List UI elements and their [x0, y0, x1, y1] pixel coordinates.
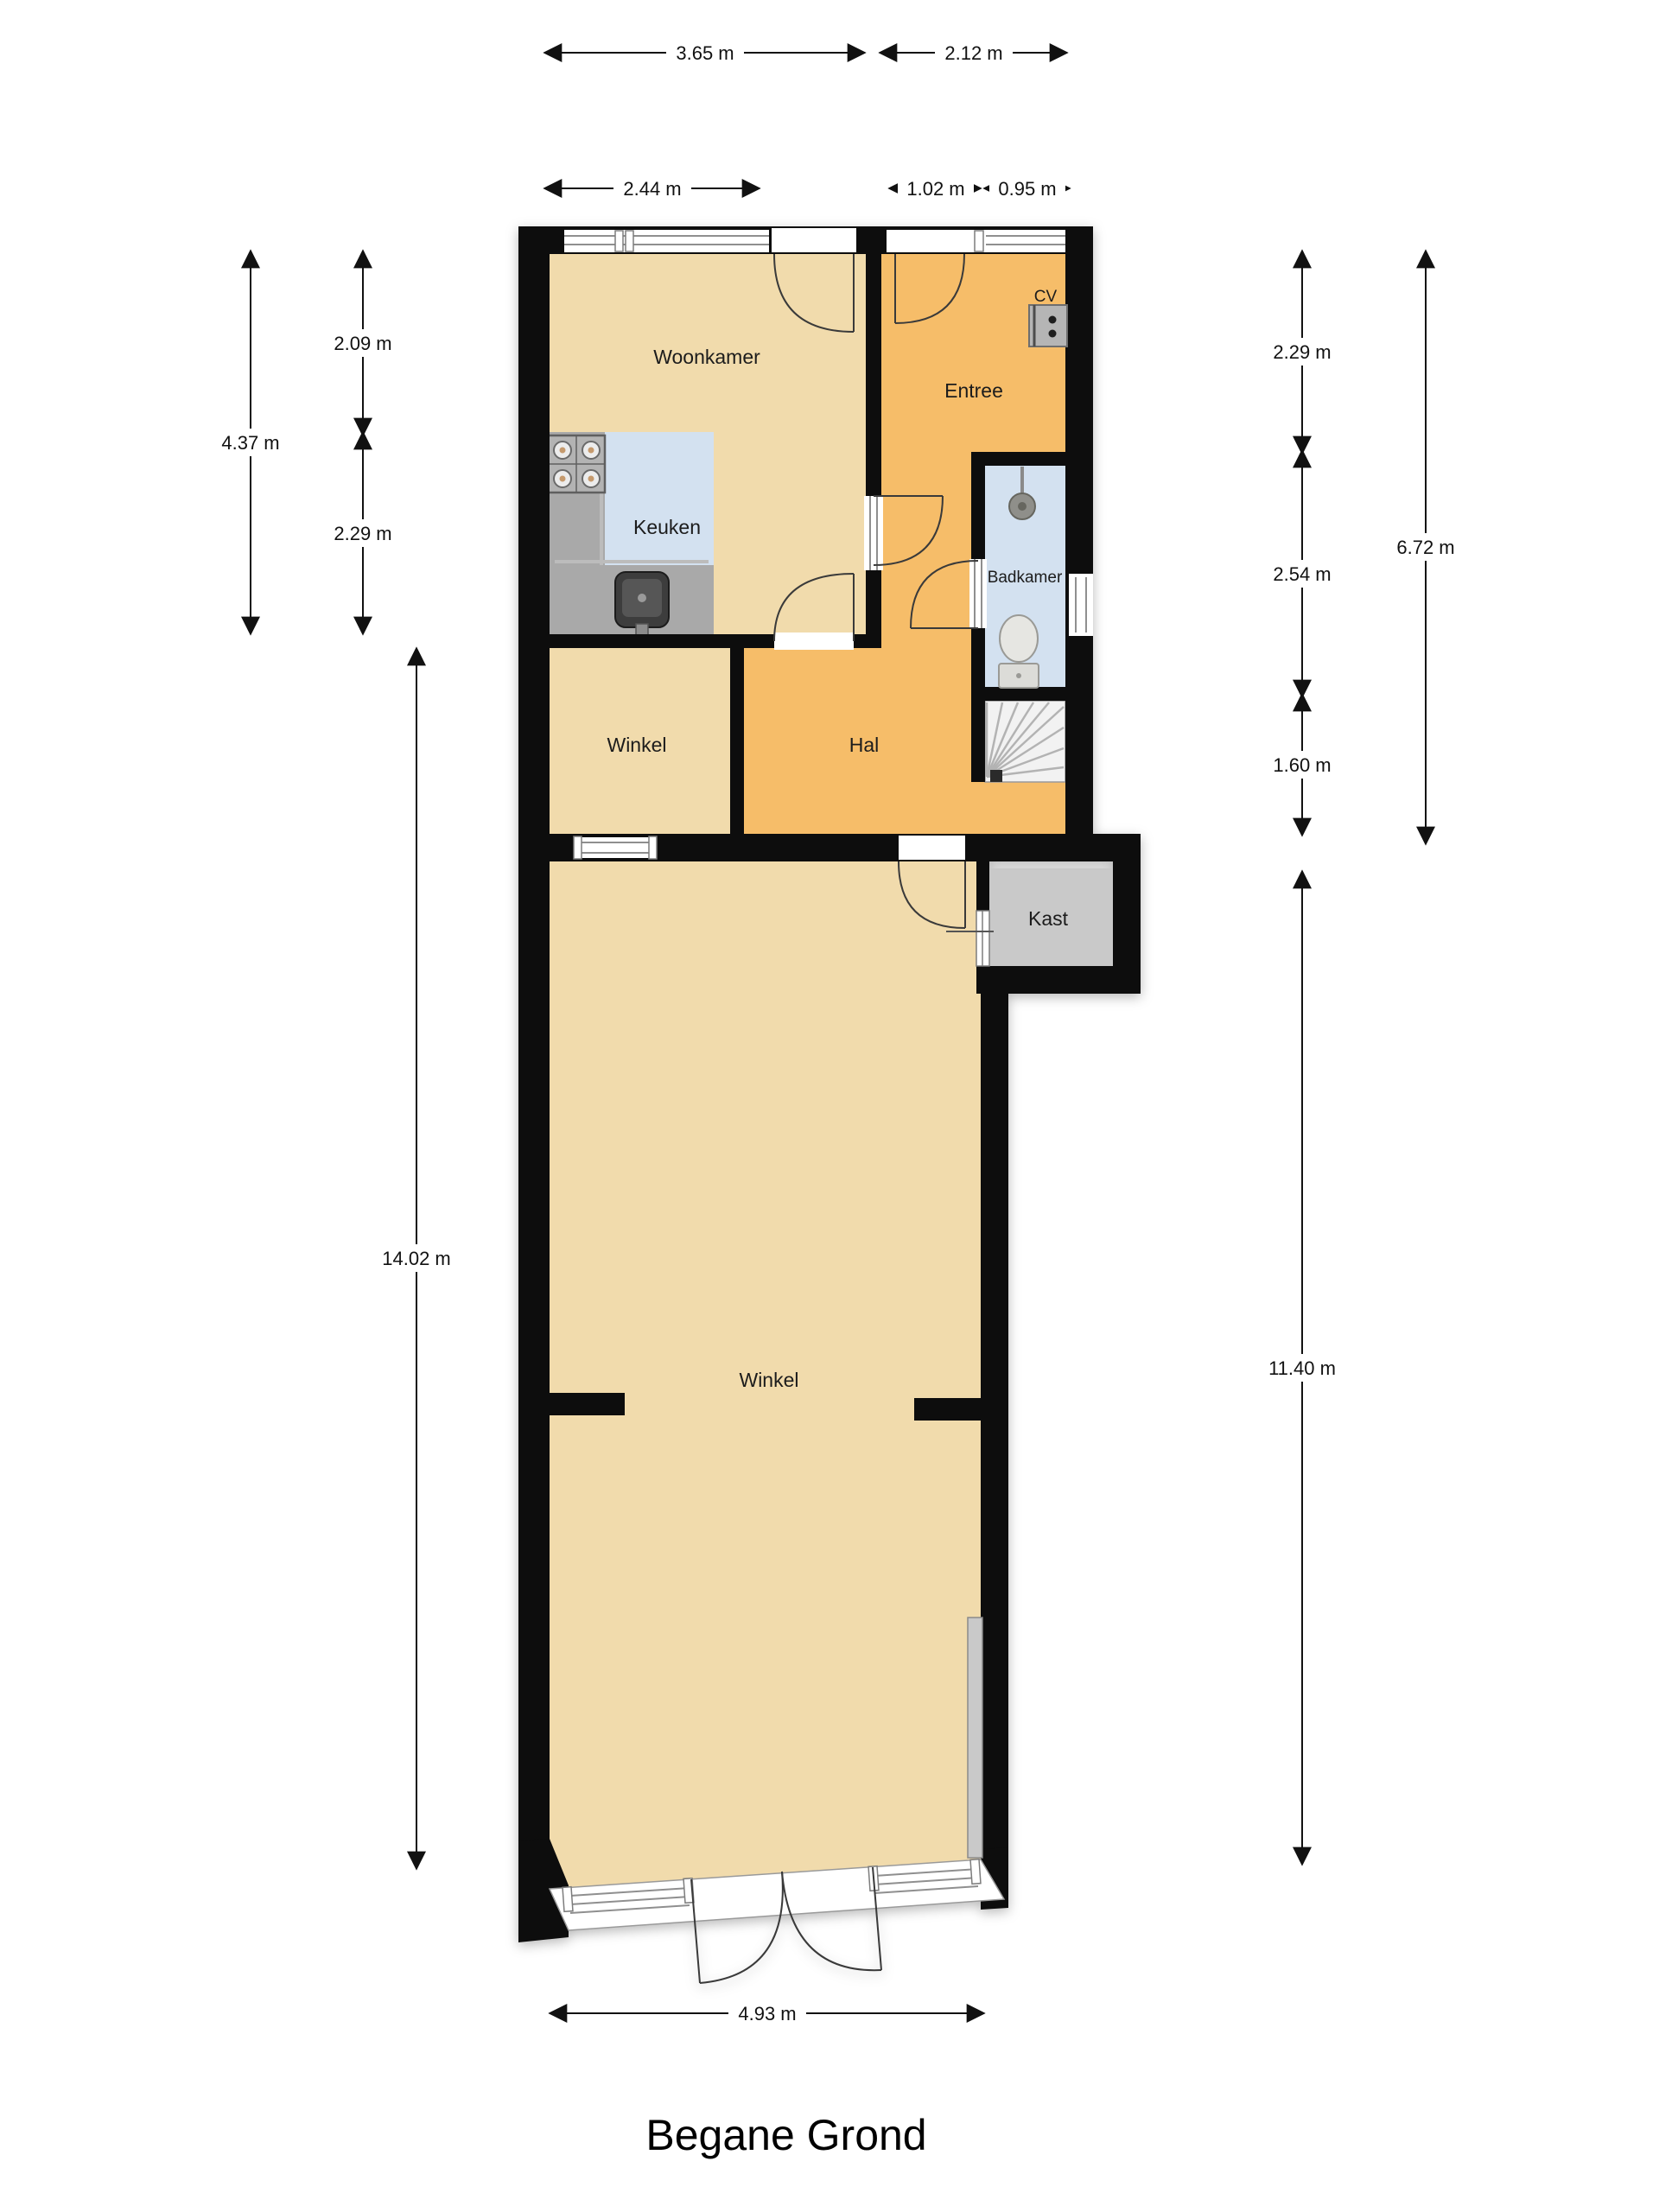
svg-text:2.44 m: 2.44 m [623, 178, 681, 200]
dim-top-woonkamer: 3.65 m [546, 39, 863, 67]
svg-text:4.93 m: 4.93 m [738, 2003, 796, 2024]
dim-right-trap: 1.60 m [1261, 696, 1344, 834]
wall-kast-bottom [976, 966, 1141, 994]
toilet-icon [999, 615, 1039, 688]
floorplan-page: { "title": "Begane Grond", "rooms": { "w… [0, 0, 1659, 2212]
stairs-icon [985, 701, 1065, 782]
stove-icon [548, 435, 605, 493]
wall-divider-woonkamer-entree [866, 254, 881, 648]
room-entree [881, 254, 1065, 452]
window-badkamer [1069, 574, 1093, 636]
wall-stub-left [550, 1393, 625, 1415]
label-keuken: Keuken [633, 516, 701, 538]
building: Woonkamer Entree Keuken Badkamer Winkel … [518, 226, 1141, 1983]
dim-left-keuken: 2.29 m [321, 434, 404, 632]
dim-right-winkel: 11.40 m [1254, 873, 1351, 1863]
svg-text:2.09 m: 2.09 m [334, 333, 391, 354]
door-opening-corridor [864, 496, 883, 570]
page-title: Begane Grond [645, 2111, 926, 2159]
svg-text:0.95 m: 0.95 m [998, 178, 1056, 200]
svg-text:1.60 m: 1.60 m [1273, 754, 1331, 776]
svg-text:1.02 m: 1.02 m [906, 178, 964, 200]
label-hal: Hal [849, 734, 880, 756]
svg-text:2.54 m: 2.54 m [1273, 563, 1331, 585]
window-panel-right [968, 1618, 982, 1858]
dim-right-entree: 2.29 m [1261, 252, 1344, 452]
wall-badkamer-top [971, 452, 1065, 466]
dim-top-woonkamer-window: 2.44 m [546, 175, 758, 202]
door-opening-keuken [774, 632, 854, 650]
wall-stub-right [914, 1398, 981, 1421]
dim-top-entree-door: 1.02 m [891, 175, 979, 202]
wall-kast-left [976, 861, 989, 911]
door-opening-hal-winkel [899, 836, 965, 860]
label-badkamer: Badkamer [988, 569, 1063, 587]
svg-text:2.29 m: 2.29 m [1273, 341, 1331, 363]
svg-text:2.29 m: 2.29 m [334, 523, 391, 544]
label-winkel-groot: Winkel [739, 1369, 798, 1391]
wall-left [518, 226, 550, 1861]
svg-text:3.65 m: 3.65 m [676, 42, 734, 64]
wall-winkel-hal [730, 648, 744, 834]
door-opening-badkamer [969, 559, 987, 628]
window-woonkamer-top [564, 230, 769, 252]
label-cv: CV [1034, 288, 1058, 306]
label-woonkamer: Woonkamer [653, 346, 760, 368]
wall-right-upper [1065, 226, 1093, 842]
label-winkel-klein: Winkel [607, 734, 666, 756]
dim-bottom-winkel: 4.93 m [551, 1999, 982, 2027]
door-opening-woonkamer-top [772, 228, 856, 252]
svg-text:14.02 m: 14.02 m [382, 1248, 451, 1269]
dim-right-badkamer: 2.54 m [1261, 452, 1344, 696]
label-entree: Entree [944, 379, 1003, 402]
dim-top-entree-window: 0.95 m [986, 175, 1068, 202]
label-kast: Kast [1028, 907, 1069, 930]
dim-top-entree: 2.12 m [881, 39, 1065, 67]
svg-text:6.72 m: 6.72 m [1396, 537, 1454, 558]
dim-right-upper-totaal: 6.72 m [1384, 252, 1467, 842]
wall-stairs-left [971, 701, 985, 782]
corridor-entree [881, 452, 971, 648]
svg-text:11.40 m: 11.40 m [1268, 1357, 1336, 1379]
wall-right-lower [981, 994, 1008, 1858]
dim-left-woonkamer: 2.09 m [321, 252, 404, 434]
sink-icon [615, 572, 669, 638]
floorplan-canvas: Woonkamer Entree Keuken Badkamer Winkel … [0, 0, 1659, 2212]
svg-text:2.12 m: 2.12 m [944, 42, 1002, 64]
svg-text:4.37 m: 4.37 m [221, 432, 279, 454]
wall-badkamer-bottom [971, 687, 1065, 701]
cv-boiler-icon [1029, 305, 1067, 346]
dim-left-winkel: 14.02 m [368, 650, 465, 1867]
opening-winkel-passage [574, 836, 657, 859]
dim-left-upper-totaal: 4.37 m [209, 252, 292, 632]
window-entree-top [887, 230, 1065, 252]
